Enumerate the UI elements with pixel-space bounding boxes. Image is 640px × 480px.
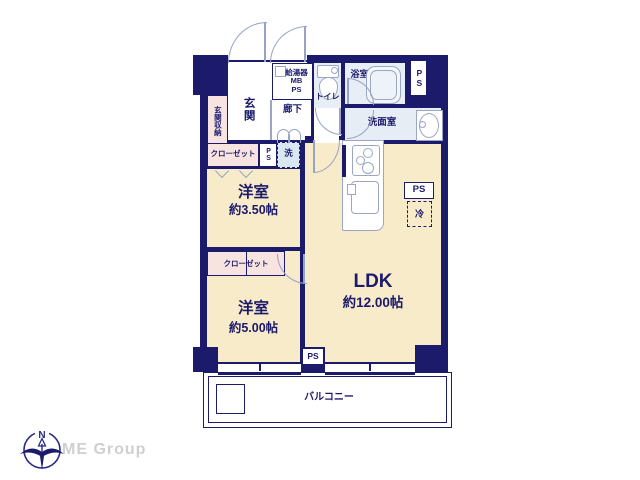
washer-label: 洗 [277,147,300,161]
washbasin-faucet-icon [419,121,426,128]
water-heater-label: 給湯器 MB PS [281,64,312,99]
fridge-label: 冷 [407,206,432,222]
hallway-label: 廊下 [272,104,313,116]
entrance-door-leaf [304,26,306,62]
closet-lower-label: クローゼット [207,257,285,271]
stove-burner-icon [363,148,373,158]
ps-closet-row-label: PS [259,145,277,165]
wall [305,136,313,140]
kitchen-faucet-icon [347,184,356,195]
wall [415,345,448,372]
bath-door-leaf [347,78,349,104]
bedroom1-size: 約3.50帖 [207,203,300,218]
entrance-door-leaf [264,22,266,62]
entrance-label: 玄関 [239,86,257,132]
bathtub-inner-icon [370,70,397,100]
bedroom2-name: 洋室 [207,299,300,319]
window-mullion [369,362,371,371]
entrance-door-arc [228,22,267,63]
toilet-label: トイレ [313,91,342,103]
wall [200,95,207,372]
ps-kitchen-label: PS [404,183,434,198]
toilet-door-leaf [339,108,341,134]
toilet-door-arc [315,108,342,135]
logo-text: ME Group [62,441,146,459]
balcony-equipment-box [216,384,245,414]
window-mullion [259,362,261,371]
ps-bottom-label: PS [303,349,323,364]
bedroom2-size: 約5.00帖 [207,321,300,336]
wall [193,347,218,372]
closet-upper-label: クローゼット [207,147,259,162]
entrance-door-arc [270,26,307,63]
entrance-storage-label: 玄関収納 [208,98,226,143]
ldk-name: LDK [323,271,423,293]
washer-bifold-door [288,129,301,143]
bedroom2-door-leaf [303,254,305,283]
bedroom1-name: 洋室 [207,183,300,202]
ldk-door-leaf [313,140,315,172]
ldk-size: 約12.00帖 [318,295,428,311]
stove-burner-icon [362,162,374,174]
wall [441,108,448,372]
ps-top-right-label: PS [411,63,426,93]
toilet-button-icon [331,67,338,74]
wall [193,55,228,95]
kitchen-wall-accent [342,145,346,177]
floorplan: バルコニー 玄関 玄関収納 給湯器 MB PS 廊下 トイレ 浴室 洗面室 PS… [0,0,640,480]
balcony-label: バルコニー [280,391,378,404]
